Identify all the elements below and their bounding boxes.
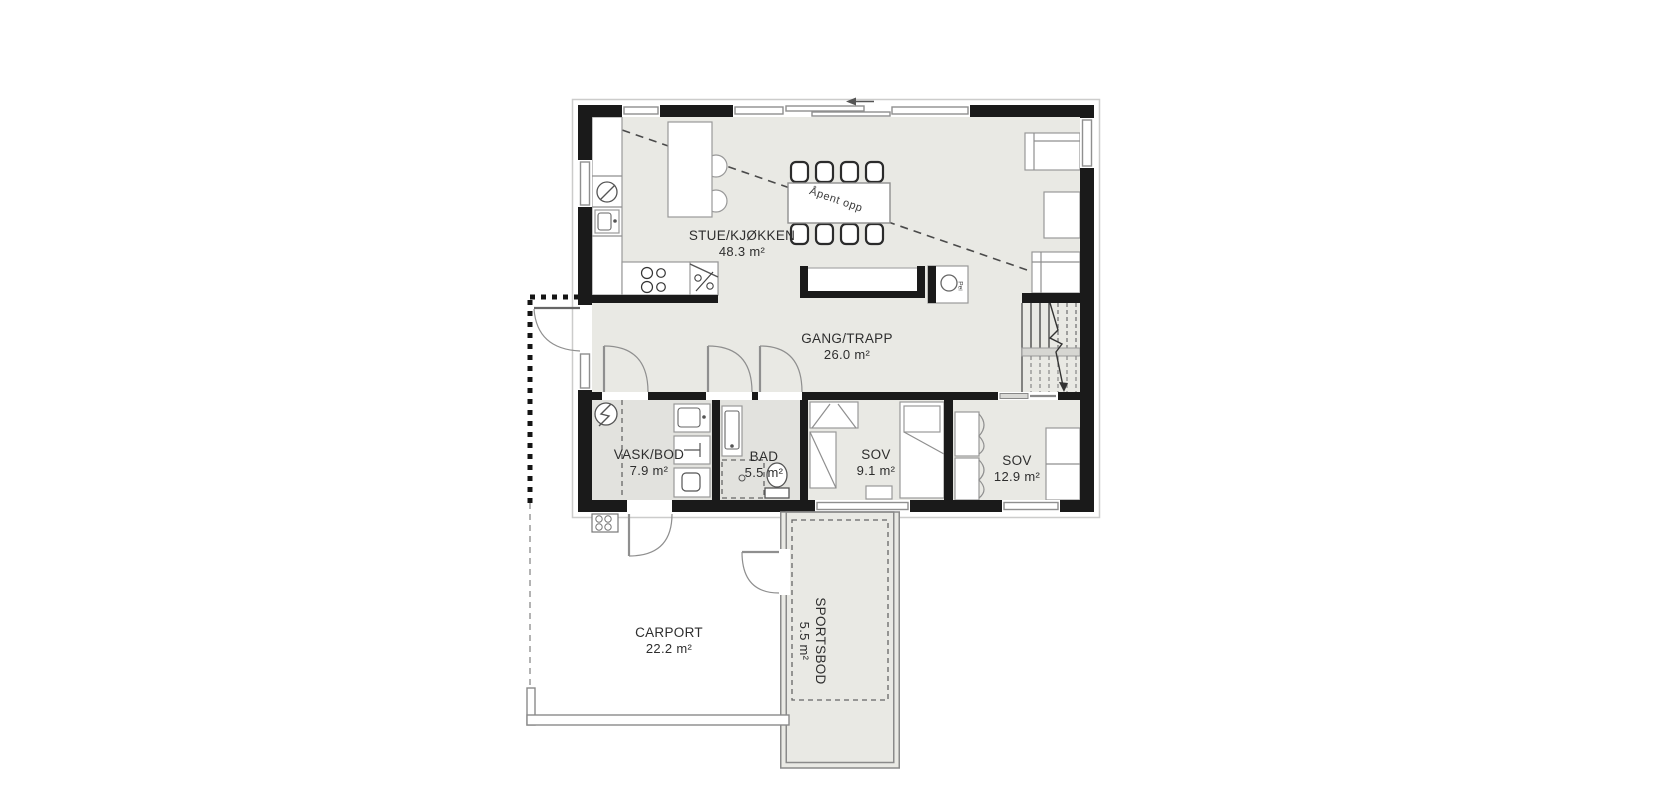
room-label-sov2: SOV 12.9 m² (994, 453, 1040, 485)
floorplan-drawing (0, 0, 1670, 800)
window (892, 107, 968, 114)
carport-entry-door (629, 514, 672, 556)
room-label-vask: VASK/BOD 7.9 m² (614, 447, 684, 479)
room-label-sportsbod: SPORTSBOD 5.5 m² (796, 597, 828, 684)
entry-sidelight-window (581, 354, 590, 388)
room-name: SPORTSBOD (812, 597, 828, 684)
room-area: 5.5 m² (796, 597, 812, 684)
room-name: STUE/KJØKKEN (689, 228, 795, 244)
room-name: SOV (994, 453, 1040, 469)
floorplan-canvas: STUE/KJØKKEN 48.3 m² GANG/TRAPP 26.0 m² … (0, 0, 1670, 800)
sportsbod-door (742, 552, 779, 593)
sofa (1032, 252, 1080, 293)
room-label-gang: GANG/TRAPP 26.0 m² (801, 331, 893, 363)
nightstand (866, 486, 892, 499)
laundry-sink-icon (674, 404, 710, 432)
room-name: GANG/TRAPP (801, 331, 893, 347)
room-area: 26.0 m² (801, 347, 893, 363)
dining-chair-icon (816, 162, 833, 182)
corner-cabinet-icon (690, 262, 718, 295)
room-name: SOV (857, 447, 896, 463)
dishwasher-icon (597, 182, 617, 202)
pillow (904, 406, 940, 432)
carport-back-wall (527, 715, 789, 725)
room-label-sov1: SOV 9.1 m² (857, 447, 896, 479)
room-label-bad: BAD 5.5 m² (745, 449, 784, 481)
electrical-panel-icon (595, 403, 617, 426)
dining-chair-icon (866, 162, 883, 182)
room-name: CARPORT (635, 625, 703, 641)
wardrobe (810, 432, 836, 488)
room-name: VASK/BOD (614, 447, 684, 463)
window (1004, 503, 1058, 510)
wardrobe (810, 402, 858, 428)
window (581, 162, 590, 205)
coffee-table (1044, 192, 1080, 238)
dining-chair-icon (816, 224, 833, 244)
dining-chair-icon (841, 224, 858, 244)
window (1083, 120, 1092, 166)
window (624, 107, 658, 114)
dining-chair-icon (841, 162, 858, 182)
window (735, 107, 783, 114)
vanity-icon (722, 406, 742, 456)
dining-chair-icon (866, 224, 883, 244)
heat-pump-icon (592, 514, 618, 532)
half-wall (800, 266, 925, 298)
room-label-stue: STUE/KJØKKEN 48.3 m² (689, 228, 795, 260)
fireplace-label: Pei (957, 281, 964, 290)
room-area: 9.1 m² (857, 463, 896, 479)
kitchen-sink-icon (595, 210, 619, 233)
room-label-carport: CARPORT 22.2 m² (635, 625, 703, 657)
sofa (1025, 133, 1080, 170)
dining-chair-icon (791, 162, 808, 182)
room-area: 22.2 m² (635, 641, 703, 657)
room-area: 7.9 m² (614, 463, 684, 479)
room-area: 5.5 m² (745, 465, 784, 481)
single-bed (900, 402, 944, 498)
room-name: BAD (745, 449, 784, 465)
window (817, 503, 908, 510)
room-area: 48.3 m² (689, 244, 795, 260)
room-area: 12.9 m² (994, 469, 1040, 485)
double-bed (1046, 428, 1080, 500)
